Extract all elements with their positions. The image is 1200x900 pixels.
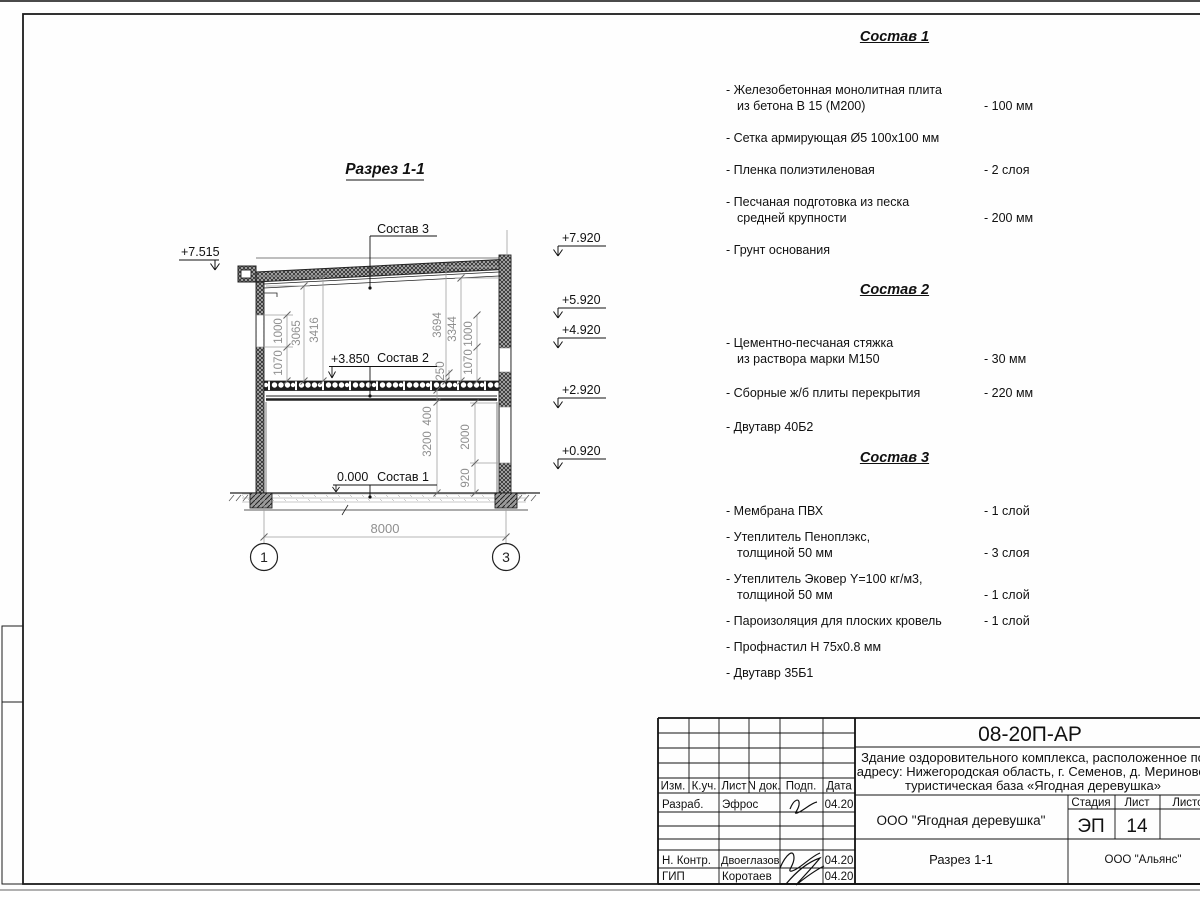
leader-labels: Состав 3 Состав 2 Состав 1 +3.850 0.000	[331, 222, 429, 484]
elev-7920: +7.920	[562, 231, 601, 245]
date-razrab: 04.20	[825, 799, 854, 811]
spec-item: - Пароизоляция для плоских кровель - 1 с…	[722, 613, 1067, 629]
sheet-title: Разрез 1-1	[929, 852, 993, 867]
stage-label: Стадия	[1071, 797, 1110, 809]
row-razrab: Разраб.	[662, 799, 703, 811]
level-0000: 0.000	[337, 470, 368, 484]
dim-1000-left: 1000	[273, 318, 285, 344]
dim-400: 400	[422, 406, 434, 425]
spec-item-value: - 200 мм	[984, 210, 1033, 226]
spec-item-text: - Мембрана ПВХ	[726, 504, 823, 518]
date-gip: 04.20	[825, 871, 854, 883]
spec-item: - Двутавр 40Б2	[722, 419, 1067, 435]
spec-section-1: Состав 1 - Железобетонная монолитная пли…	[722, 28, 1067, 274]
row-gip: ГИП	[662, 871, 685, 883]
spec-item: - Пленка полиэтиленовая - 2 слоя	[722, 162, 1067, 178]
spec-title-2: Состав 2	[722, 281, 1067, 299]
dim-8000: 8000	[371, 521, 400, 536]
elev-5920: +5.920	[562, 293, 601, 307]
col-podp: Подп.	[786, 781, 817, 793]
spec-item: - Утеплитель Эковер Y=100 кг/м3, толщино…	[722, 571, 1067, 603]
spec-item-value: - 100 мм	[984, 98, 1033, 114]
spec-item-text: - Сетка армирующая Ø5 100х100 мм	[726, 131, 939, 145]
left-wall	[256, 282, 264, 497]
spec-item-text: - Утеплитель Эковер Y=100 кг/м3,	[726, 572, 922, 586]
spec-item-value: - 1 слой	[984, 587, 1030, 603]
foundation-left	[250, 493, 272, 508]
level-3850: +3.850	[331, 352, 370, 366]
dim-3065: 3065	[291, 320, 303, 346]
stage-value: ЭП	[1077, 816, 1104, 837]
sheets-label: Листов	[1172, 797, 1200, 809]
signature	[780, 853, 824, 885]
spec-item-text: - Сборные ж/б плиты перекрытия	[726, 386, 920, 400]
spec-item: - Грунт основания	[722, 242, 1067, 258]
project-desc-line1: Здание оздоровительного комплекса, распо…	[861, 750, 1200, 765]
spec-item-text: - Двутавр 40Б2	[726, 420, 813, 434]
dim-3416: 3416	[309, 317, 321, 343]
spec-section-3: Состав 3 - Мембрана ПВХ - 1 слой - Утепл…	[722, 449, 1067, 691]
org-name: ООО "Ягодная деревушка"	[877, 813, 1046, 828]
dim-3200: 3200	[422, 431, 434, 457]
leader-sostav1: Состав 1	[377, 470, 429, 484]
spec-item-value: - 1 слой	[984, 503, 1030, 519]
spec-item-text: - Цементно-песчаная стяжка	[726, 336, 893, 350]
spec-item-text: - Пленка полиэтиленовая	[726, 163, 875, 177]
col-list: Лист	[722, 781, 748, 793]
col-ndoc: N док.	[748, 781, 781, 793]
leader-sostav3: Состав 3	[377, 222, 429, 236]
spec-item-value: - 1 слой	[984, 613, 1030, 629]
leader-sostav2: Состав 2	[377, 351, 429, 365]
dim-2000: 2000	[460, 424, 472, 450]
spec-item: - Сетка армирующая Ø5 100х100 мм	[722, 130, 1067, 146]
spec-item-text: - Грунт основания	[726, 243, 830, 257]
spec-item-value: - 220 мм	[984, 385, 1033, 401]
elev-2920: +2.920	[562, 383, 601, 397]
sheet-number: 14	[1126, 816, 1148, 837]
project-desc-line2: адресу: Нижегородская область, г. Семено…	[857, 764, 1200, 779]
spec-item: - Мембрана ПВХ - 1 слой	[722, 503, 1067, 519]
elev-4920: +4.920	[562, 323, 601, 337]
spec-item-value: - 30 мм	[984, 351, 1026, 367]
name-gip: Коротаев	[722, 871, 772, 883]
drawing-sheet: Разрез 1-1	[0, 0, 1200, 900]
spec-item-text: - Пароизоляция для плоских кровель	[726, 614, 942, 628]
spec-item: - Профнастил Н 75х0.8 мм	[722, 639, 1067, 655]
col-kuch: К.уч.	[692, 781, 717, 793]
spec-item: - Цементно-песчаная стяжка из раствора м…	[722, 335, 1067, 367]
dim-1070-left: 1070	[273, 350, 285, 376]
dim-1070-right: 1070	[463, 349, 475, 375]
date-nkontr: 04.20	[825, 855, 854, 867]
name-nkontr: Двоеглазов	[721, 855, 780, 867]
spec-item: - Сборные ж/б плиты перекрытия - 220 мм	[722, 385, 1067, 401]
spec-item: - Песчаная подготовка из песка средней к…	[722, 194, 1067, 226]
spec-item-text: - Профнастил Н 75х0.8 мм	[726, 640, 881, 654]
drawing-title: Разрез 1-1	[345, 161, 425, 178]
spec-item: - Утеплитель Пеноплэкс, толщиной 50 мм -…	[722, 529, 1067, 561]
spec-item-value: - 2 слоя	[984, 162, 1029, 178]
elev-0920: +0.920	[562, 444, 601, 458]
signature	[790, 800, 817, 813]
spec-title-3: Состав 3	[722, 449, 1067, 467]
spec-item-value: - 3 слоя	[984, 545, 1029, 561]
row-nkontr: Н. Контр.	[662, 855, 711, 867]
name-razrab: Эфрос	[722, 799, 759, 811]
axis-1: 1	[260, 549, 268, 565]
dim-920: 920	[460, 468, 472, 487]
spec-item-text: - Двутавр 35Б1	[726, 666, 813, 680]
elev-7515: +7.515	[181, 245, 220, 259]
project-desc-line3: туристическая база «Ягодная деревушка»	[905, 778, 1161, 793]
spec-item: - Двутавр 35Б1	[722, 665, 1067, 681]
sheet-label: Лист	[1125, 797, 1151, 809]
floor-slab	[264, 381, 499, 391]
dim-3694: 3694	[432, 312, 444, 338]
ground-slab	[242, 493, 526, 505]
spec-section-2: Состав 2 - Цементно-песчаная стяжка из р…	[722, 281, 1067, 453]
contractor-name: ООО "Альянс"	[1105, 854, 1182, 866]
dim-250: 250	[435, 361, 447, 380]
spec-item-text: - Утеплитель Пеноплэкс,	[726, 530, 870, 544]
doc-number: 08-20П-АР	[978, 723, 1082, 746]
col-data: Дата	[826, 781, 852, 793]
spec-title-1: Состав 1	[722, 28, 1067, 46]
spec-item-text: - Песчаная подготовка из песка	[726, 195, 909, 209]
axis-bubbles: 1 3	[251, 544, 520, 571]
dim-1000-right: 1000	[463, 321, 475, 347]
spec-item: - Железобетонная монолитная плита из бет…	[722, 82, 1067, 114]
col-izm: Изм.	[661, 781, 686, 793]
axis-3: 3	[502, 549, 510, 565]
dim-3344: 3344	[447, 316, 459, 342]
spec-item-text: - Железобетонная монолитная плита	[726, 83, 942, 97]
drawing-title-group: Разрез 1-1	[345, 161, 425, 180]
